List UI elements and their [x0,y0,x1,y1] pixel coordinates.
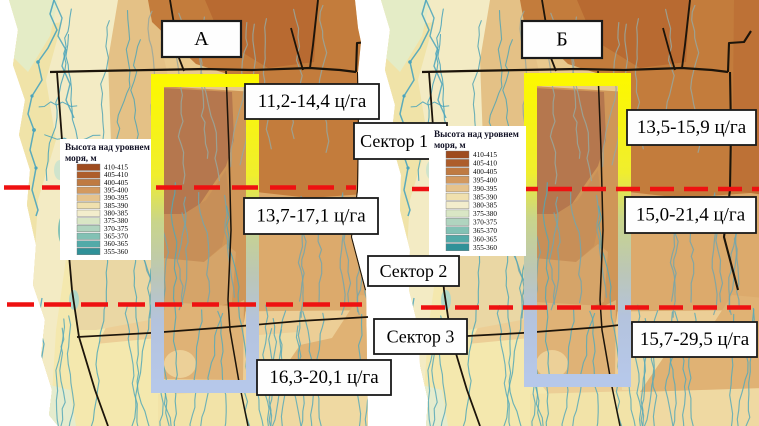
svg-text:355-360: 355-360 [104,248,128,256]
svg-text:400-405: 400-405 [473,168,497,176]
svg-text:15,7-29,5 ц/га: 15,7-29,5 ц/га [640,329,750,350]
svg-text:16,3-20,1 ц/га: 16,3-20,1 ц/га [269,367,379,388]
svg-text:13,7-17,1 ц/га: 13,7-17,1 ц/га [256,206,366,227]
svg-text:370-375: 370-375 [473,219,497,227]
svg-text:Сектор 1: Сектор 1 [360,131,428,151]
svg-text:моря, м: моря, м [65,153,97,163]
svg-text:375-380: 375-380 [473,210,497,218]
svg-text:Высота над уровнем: Высота над уровнем [434,129,519,139]
svg-text:410-415: 410-415 [473,151,497,159]
svg-text:380-385: 380-385 [473,202,497,210]
svg-text:385-390: 385-390 [473,193,497,201]
svg-text:13,5-15,9 ц/га: 13,5-15,9 ц/га [637,117,747,138]
svg-text:моря, м: моря, м [434,140,466,150]
svg-text:А: А [194,28,209,50]
svg-text:Сектор 3: Сектор 3 [387,327,455,347]
svg-text:390-395: 390-395 [473,185,497,193]
svg-text:11,2-14,4 ц/га: 11,2-14,4 ц/га [258,91,367,112]
svg-text:405-410: 405-410 [473,160,497,168]
svg-text:Высота над уровнем: Высота над уровнем [65,142,150,152]
svg-text:Б: Б [556,29,567,51]
svg-text:395-400: 395-400 [473,177,497,185]
svg-text:355-360: 355-360 [473,244,497,252]
svg-text:365-370: 365-370 [473,227,497,235]
svg-text:15,0-21,4 ц/га: 15,0-21,4 ц/га [636,205,746,226]
svg-text:Сектор 2: Сектор 2 [380,261,448,281]
svg-text:360-365: 360-365 [473,235,497,243]
